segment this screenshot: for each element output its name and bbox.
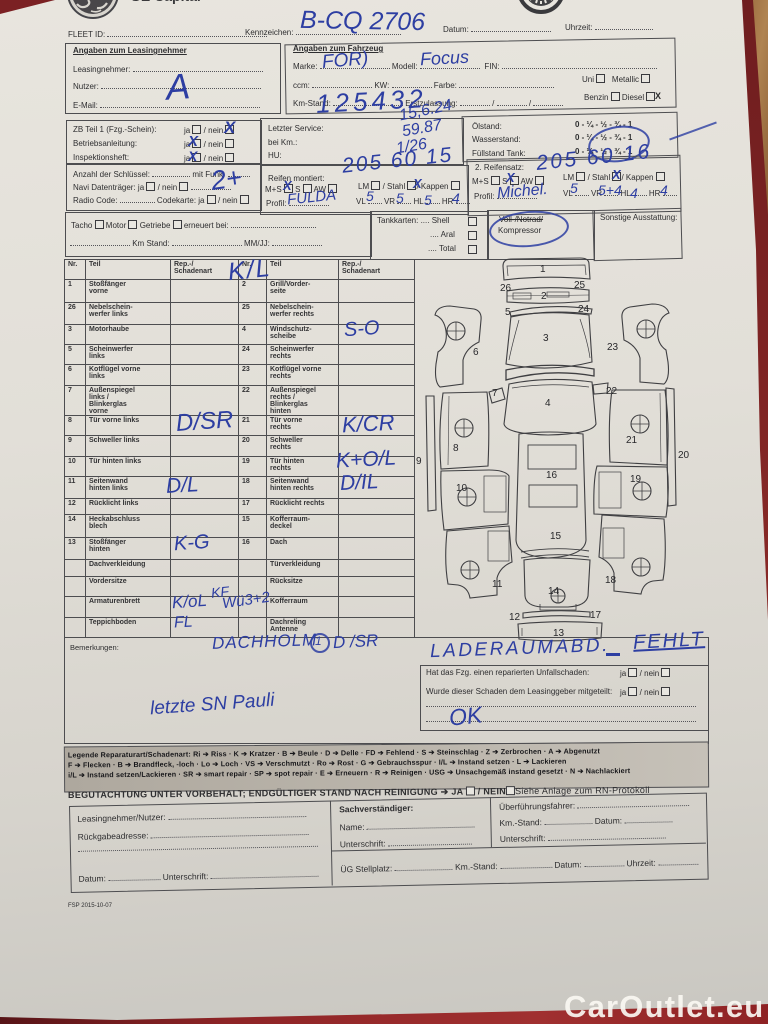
svg-text:5: 5 bbox=[505, 307, 511, 318]
svg-text:24: 24 bbox=[578, 304, 590, 315]
svg-text:7: 7 bbox=[492, 388, 498, 399]
svg-text:2: 2 bbox=[541, 291, 547, 302]
svg-text:19: 19 bbox=[630, 474, 642, 485]
svg-text:1: 1 bbox=[540, 264, 546, 275]
svg-text:21: 21 bbox=[626, 435, 638, 446]
svg-text:4: 4 bbox=[545, 398, 551, 409]
svg-text:6: 6 bbox=[473, 347, 479, 358]
svg-text:20: 20 bbox=[678, 450, 690, 461]
svg-text:10: 10 bbox=[456, 483, 468, 494]
svg-text:16: 16 bbox=[546, 470, 558, 481]
svg-text:14: 14 bbox=[548, 586, 560, 597]
svg-text:8: 8 bbox=[453, 443, 459, 454]
svg-text:18: 18 bbox=[605, 575, 617, 586]
svg-text:17: 17 bbox=[590, 610, 602, 621]
svg-text:23: 23 bbox=[607, 342, 619, 353]
svg-text:9: 9 bbox=[416, 456, 422, 467]
svg-text:11: 11 bbox=[492, 579, 503, 590]
svg-text:26: 26 bbox=[500, 283, 512, 294]
svg-text:22: 22 bbox=[606, 386, 618, 397]
svg-text:12: 12 bbox=[509, 612, 521, 623]
svg-text:25: 25 bbox=[574, 280, 586, 291]
svg-text:15: 15 bbox=[550, 531, 562, 542]
svg-text:3: 3 bbox=[543, 333, 549, 344]
